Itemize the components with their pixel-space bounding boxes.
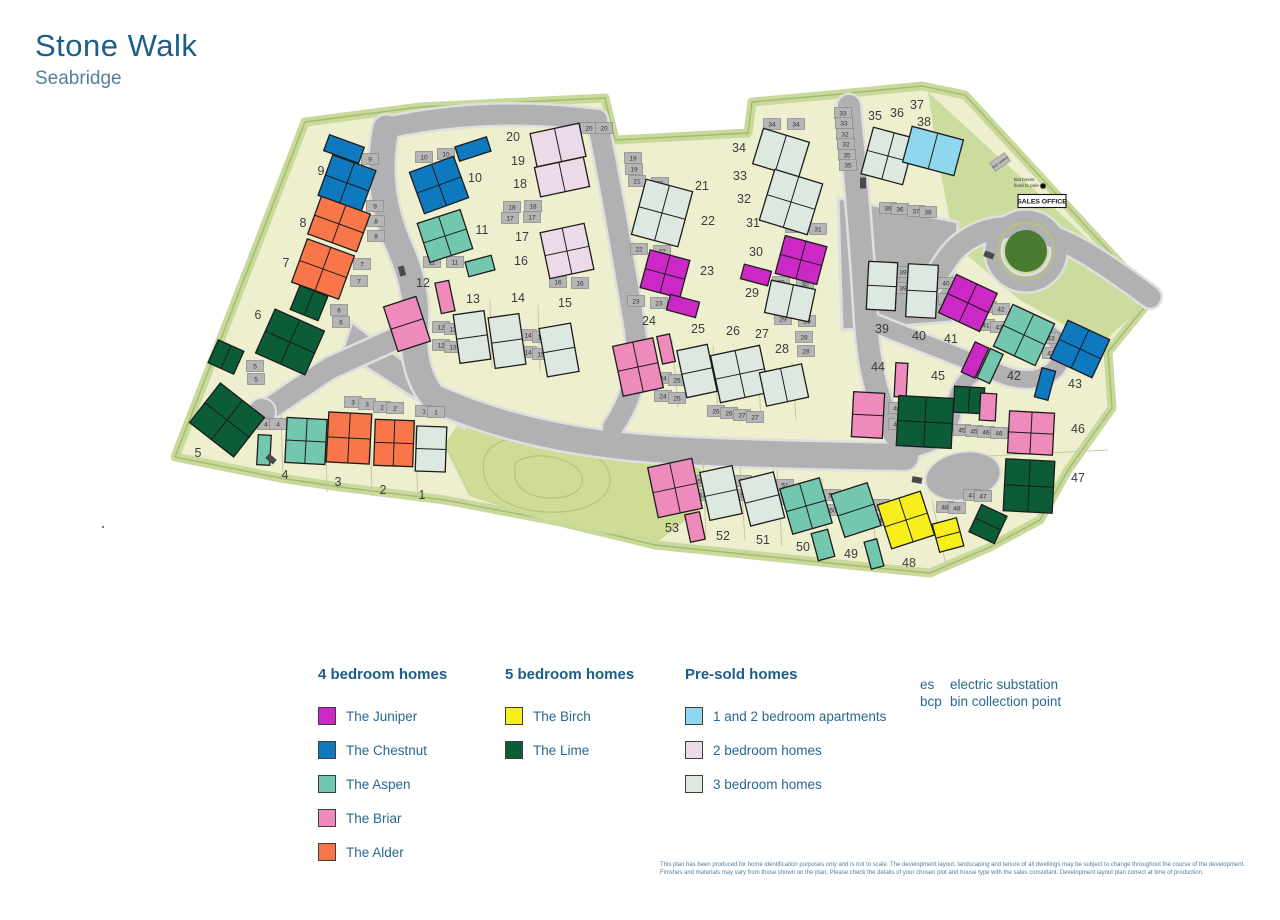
plot-number-44: 44	[871, 360, 885, 374]
garage-box-label: 1	[422, 408, 426, 415]
garage-box-label: 19	[629, 155, 637, 162]
garage-box-label: 34	[792, 121, 800, 128]
plot-number-6: 6	[255, 308, 262, 322]
plot-number-1: 1	[419, 488, 426, 502]
plot-number-17: 17	[515, 230, 529, 244]
plot-number-19: 19	[511, 154, 525, 168]
garage-box-label: 8	[374, 233, 378, 240]
garage-box-label: 9	[373, 203, 377, 210]
plot-number-48: 48	[902, 556, 916, 570]
plot-number-4: 4	[282, 468, 289, 482]
garage-box-label: 46	[982, 429, 990, 436]
garage-box-label: 16	[576, 280, 584, 287]
plot-number-7: 7	[283, 256, 290, 270]
plot-number-18: 18	[513, 177, 527, 191]
garage-box-label: 42	[997, 306, 1005, 313]
garage-box-label: 31	[814, 226, 822, 233]
garage-box-label: 6	[339, 319, 343, 326]
plot-number-8: 8	[300, 216, 307, 230]
plot-number-32: 32	[737, 192, 751, 206]
plot-number-15: 15	[558, 296, 572, 310]
house-plot-44	[894, 363, 908, 398]
plot-number-43: 43	[1068, 377, 1082, 391]
green-circle	[1005, 230, 1047, 272]
garage-box-label: 36	[884, 205, 892, 212]
site-plan-map: 9988771010111166554433221120201818171716…	[0, 0, 1280, 920]
plot-number-41: 41	[944, 332, 958, 346]
garage-box-label: 23	[632, 298, 640, 305]
house-plot-46	[1007, 411, 1054, 455]
plot-number-49: 49	[844, 547, 858, 561]
garage-box-label: 24	[659, 393, 667, 400]
garage-box-label: 7	[360, 261, 364, 268]
house-footprint	[979, 393, 996, 421]
garage-box-label: 27	[751, 414, 759, 421]
plot-number-39: 39	[875, 322, 889, 336]
garage-box-label: 35	[844, 162, 852, 169]
garage-box-label: 48	[953, 505, 961, 512]
plot-number-33: 33	[733, 169, 747, 183]
garage-box-label: 12	[437, 342, 445, 349]
house-plot-1	[415, 426, 447, 472]
plot-number-30: 30	[749, 245, 763, 259]
plot-number-20: 20	[506, 130, 520, 144]
plot-number-24: 24	[642, 314, 656, 328]
garage-box-label: 12	[437, 324, 445, 331]
plot-number-21: 21	[695, 179, 709, 193]
garage-box-label: 40	[942, 280, 950, 287]
plot-number-12: 12	[416, 276, 430, 290]
sales-office-label: SALES OFFICE	[1017, 199, 1067, 206]
plot-number-29: 29	[745, 286, 759, 300]
garage-box-label: 18	[529, 203, 537, 210]
garage-box-label: 17	[506, 215, 514, 222]
electric-substation-marker	[860, 178, 866, 189]
house-plot-46	[979, 393, 996, 421]
garage-box-label: 7	[357, 278, 361, 285]
garage-box-label: 28	[802, 348, 810, 355]
garage-box-label: 26	[725, 410, 733, 417]
plot-number-5: 5	[195, 446, 202, 460]
garage-box-label: 10	[420, 154, 428, 161]
garage-box-label: 39	[899, 269, 907, 276]
plot-number-9: 9	[318, 164, 325, 178]
garage-box-label: 3	[351, 399, 355, 406]
garage-box-label: 34	[768, 121, 776, 128]
garage-box-label: 45	[970, 428, 978, 435]
garage-box-label: 4	[264, 421, 268, 428]
garage-box-label: 39	[899, 285, 907, 292]
plot-number-28: 28	[775, 342, 789, 356]
plot-number-47: 47	[1071, 471, 1085, 485]
garage-box-label: 47	[979, 493, 987, 500]
garage-box-label: 19	[630, 166, 638, 173]
plot-number-3: 3	[335, 475, 342, 489]
plot-number-13: 13	[466, 292, 480, 306]
garage-box-label: 8	[374, 218, 378, 225]
plot-number-37: 37	[910, 98, 924, 112]
header: Stone Walk Seabridge	[35, 28, 197, 90]
plot-number-42: 42	[1007, 369, 1021, 383]
garage-box-label: 36	[896, 206, 904, 213]
plot-number-51: 51	[756, 533, 770, 547]
garage-box-label: 14	[524, 349, 532, 356]
house-plot-40	[906, 264, 939, 318]
plot-number-26: 26	[726, 324, 740, 338]
bat-boxes-label-2: fixed to pole	[1014, 183, 1039, 188]
garage-box-label: 2	[380, 404, 384, 411]
plot-number-27: 27	[755, 327, 769, 341]
garage-box-label: 38	[924, 209, 932, 216]
garage-box-label: 32	[841, 131, 849, 138]
garage-box-label: 6	[337, 307, 341, 314]
plot-number-34: 34	[732, 141, 746, 155]
plot-number-11: 11	[476, 223, 489, 237]
garage-box-label: 26	[712, 408, 720, 415]
garage-box-label: 11	[452, 259, 459, 266]
garage-box-label: 20	[585, 125, 593, 132]
garage-box-label: 2	[393, 405, 397, 412]
plot-number-50: 50	[796, 540, 810, 554]
plot-number-45: 45	[931, 369, 945, 383]
garage-box-label: 18	[508, 204, 516, 211]
house-plot-44	[851, 392, 884, 439]
garage-box-label: 48	[941, 504, 949, 511]
house-plot-47	[1003, 459, 1055, 513]
house-plot-3	[326, 412, 372, 464]
garage-box-label: 3	[365, 401, 369, 408]
house-plot-16-17	[540, 223, 594, 278]
house-plot-14	[488, 314, 526, 369]
plot-number-25: 25	[691, 322, 705, 336]
plot-number-2: 2	[380, 483, 387, 497]
garage-box-label: 13	[449, 344, 457, 351]
plot-number-14: 14	[511, 291, 525, 305]
plot-number-35: 35	[868, 109, 882, 123]
house-plot-53	[648, 458, 703, 517]
garage-box-label: 35	[843, 152, 851, 159]
plot-number-52: 52	[716, 529, 730, 543]
plot-number-31: 31	[746, 216, 760, 230]
bat-boxes-label-1: Bat boxes	[1014, 177, 1035, 182]
plot-number-36: 36	[890, 106, 904, 120]
stray-dot	[102, 526, 104, 528]
garage-box-label: 5	[253, 363, 257, 370]
garage-box-label: 1	[434, 409, 438, 416]
garage-box-label: 9	[368, 156, 372, 163]
garage-box-label: 27	[738, 412, 746, 419]
plot-number-23: 23	[700, 264, 714, 278]
garage-box-label: 5	[254, 376, 258, 383]
garage-box-label: 17	[528, 214, 536, 221]
garage-box-label: 33	[840, 120, 848, 127]
plot-number-10: 10	[468, 171, 482, 185]
plot-number-53: 53	[665, 521, 679, 535]
garage-box-label: 20	[600, 125, 608, 132]
house-plot-13	[453, 311, 491, 364]
garage-box-label: 25	[673, 395, 681, 402]
garage-box-label: 28	[800, 334, 808, 341]
page-title: Stone Walk	[35, 28, 197, 64]
garage-box-label: 14	[524, 332, 532, 339]
plot-number-16: 16	[514, 254, 528, 268]
garage-box-label: 25	[673, 377, 681, 384]
house-plot-45	[896, 396, 954, 449]
house-plot-2	[374, 419, 415, 466]
plot-number-46: 46	[1071, 422, 1085, 436]
garage-box-label: 32	[842, 141, 850, 148]
garage-box-label: 21	[633, 178, 641, 185]
plot-number-22: 22	[701, 214, 715, 228]
plot-number-38: 38	[917, 115, 931, 129]
garage-box-label: 46	[995, 430, 1003, 437]
page-subtitle: Seabridge	[35, 68, 197, 90]
garage-box-label: 23	[655, 300, 663, 307]
house-footprint	[894, 363, 908, 398]
garage-box-label: 45	[958, 427, 966, 434]
garage-box-label: 37	[912, 208, 920, 215]
bat-box-pole-dot	[1040, 183, 1046, 189]
house-plot-4	[285, 417, 327, 464]
garage-box-label: 22	[635, 246, 643, 253]
garage-box-label: 4	[276, 421, 280, 428]
house-plot-39	[866, 261, 897, 310]
plot-number-40: 40	[912, 329, 926, 343]
garage-box-label: 16	[554, 279, 562, 286]
garage-box-label: 33	[839, 110, 847, 117]
